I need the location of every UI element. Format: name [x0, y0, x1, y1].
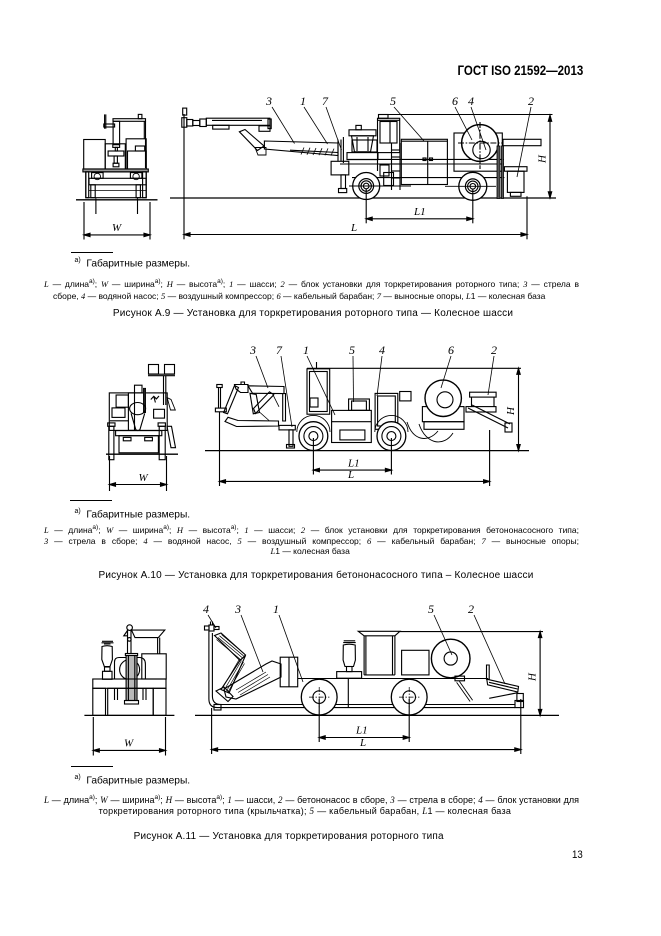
svg-text:2: 2	[528, 94, 534, 108]
svg-text:L1: L1	[347, 458, 360, 470]
svg-text:4: 4	[468, 94, 474, 108]
svg-text:5: 5	[349, 343, 355, 357]
svg-text:W: W	[139, 472, 149, 484]
svg-text:W: W	[124, 738, 134, 750]
svg-text:4: 4	[203, 602, 209, 616]
svg-text:7: 7	[276, 343, 283, 357]
svg-text:L: L	[347, 469, 354, 481]
svg-text:L: L	[359, 737, 366, 749]
svg-text:7: 7	[322, 94, 329, 108]
svg-text:3: 3	[234, 602, 241, 616]
svg-text:H: H	[505, 406, 517, 416]
svg-text:L: L	[350, 222, 357, 234]
svg-text:1: 1	[303, 343, 309, 357]
svg-text:6: 6	[452, 94, 458, 108]
svg-text:5: 5	[428, 602, 434, 616]
svg-text:3: 3	[265, 94, 272, 108]
svg-text:5: 5	[390, 94, 396, 108]
svg-text:W: W	[112, 222, 122, 234]
svg-text:4: 4	[379, 343, 385, 357]
svg-text:H: H	[527, 672, 539, 682]
svg-text:L1: L1	[355, 725, 368, 737]
svg-text:1: 1	[300, 94, 306, 108]
svg-text:H: H	[537, 154, 549, 164]
svg-text:1: 1	[273, 602, 279, 616]
svg-text:2: 2	[468, 602, 474, 616]
svg-text:6: 6	[448, 343, 454, 357]
svg-text:L1: L1	[413, 206, 426, 218]
svg-text:3: 3	[249, 343, 256, 357]
svg-text:2: 2	[491, 343, 497, 357]
